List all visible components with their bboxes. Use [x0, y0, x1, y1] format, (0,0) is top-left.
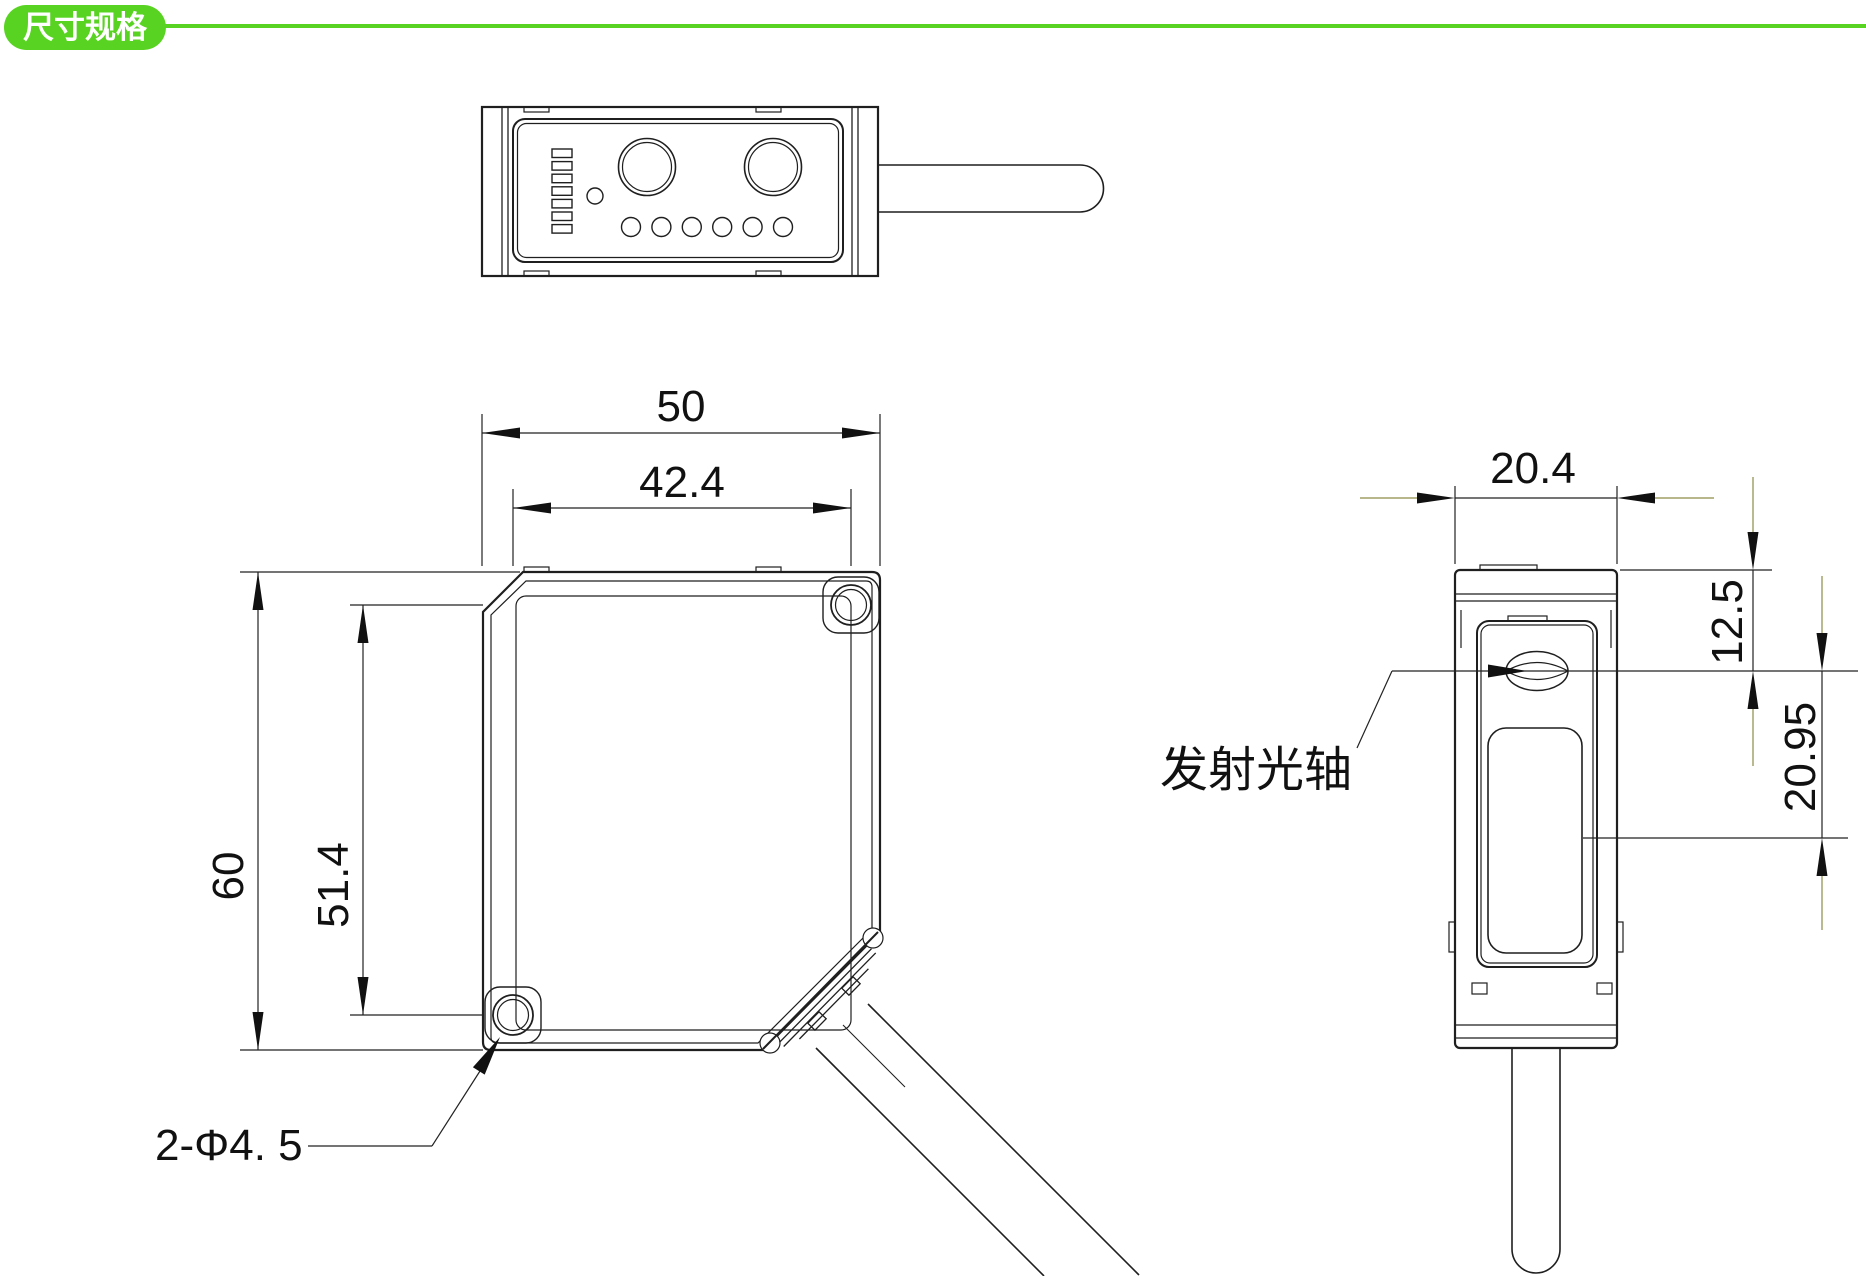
cable-edge	[868, 1004, 1139, 1275]
arrowhead	[1748, 671, 1759, 709]
led-bar	[552, 174, 572, 183]
button-dot	[682, 218, 701, 237]
dim-51-4: 51.4	[309, 605, 483, 1015]
arrowhead	[1617, 493, 1655, 504]
dim-20-4: 20.4	[1360, 444, 1714, 564]
button-dot	[743, 218, 762, 237]
gland-strip	[784, 953, 876, 1047]
leader-arrowhead	[473, 1037, 500, 1075]
dim-20-4-label: 20.4	[1490, 444, 1576, 493]
button-dot	[652, 218, 671, 237]
arrowhead	[1817, 633, 1828, 671]
hole-callout-label: 2-Φ4. 5	[155, 1121, 303, 1170]
header-badge-label: 尺寸规格	[23, 10, 148, 45]
mounting-hole-bottom-left	[493, 995, 533, 1035]
arrowhead	[253, 572, 264, 610]
arrowhead	[1417, 493, 1455, 504]
label-2-phi4-5: 2-Φ4. 5	[155, 1037, 500, 1170]
cable-front-view	[816, 1004, 1139, 1276]
leader-line	[1357, 671, 1392, 748]
button-row	[622, 218, 793, 237]
leader-line	[432, 1071, 480, 1146]
cable-top-view	[878, 165, 1104, 212]
front-body-outline	[483, 572, 880, 1050]
cable-side-view	[1512, 1048, 1560, 1273]
front-view-drawing	[483, 567, 1139, 1276]
arrowhead	[842, 428, 880, 439]
dim-60-label: 60	[204, 852, 253, 901]
top-view-body	[482, 107, 878, 276]
lens-emitter-inner	[623, 143, 672, 192]
dim-42-4: 42.4	[513, 458, 851, 566]
cable-mid-line	[843, 1025, 905, 1087]
lens-emitter	[619, 139, 676, 196]
led-bar	[552, 187, 572, 196]
lower-tab	[1472, 983, 1487, 994]
face-panel	[513, 119, 843, 262]
drawing-canvas: 尺寸规格	[0, 0, 1866, 1276]
emission-axis-label: 发射光轴	[1160, 744, 1352, 797]
led-bar-column	[552, 149, 572, 233]
arrowhead	[1748, 532, 1759, 570]
button-dot	[713, 218, 732, 237]
top-view-drawing	[482, 107, 1104, 276]
dim-51-4-label: 51.4	[309, 842, 358, 928]
led-bar	[552, 149, 572, 158]
dim-50-label: 50	[657, 382, 706, 431]
indicator-led	[587, 188, 603, 204]
arrowhead	[813, 503, 851, 514]
dim-12-5-label: 12.5	[1703, 579, 1752, 665]
cable-gland	[780, 949, 876, 1047]
dim-12-5: 12.5	[1620, 477, 1772, 766]
button-dot	[774, 218, 793, 237]
led-bar	[552, 212, 572, 221]
section-header: 尺寸规格	[4, 5, 1866, 50]
side-view-dimensions: 20.4 12.5 20.95 发射光轴	[1160, 444, 1858, 930]
lens-receiver	[745, 139, 802, 196]
lens-receiver-inner	[749, 143, 798, 192]
led-bar	[552, 199, 572, 208]
chamfer-edge	[763, 932, 878, 1049]
arrowhead	[1817, 838, 1828, 876]
button-dot	[622, 218, 641, 237]
front-face-plate	[516, 596, 851, 1030]
gland-strip	[780, 949, 872, 1043]
arrowhead	[253, 1012, 264, 1050]
led-bar	[552, 225, 572, 234]
arrowhead	[482, 428, 520, 439]
dimension-drawing-page: 尺寸规格	[0, 0, 1866, 1276]
arrowhead	[513, 503, 551, 514]
arrowhead	[358, 977, 369, 1015]
lower-tab	[1597, 983, 1612, 994]
cable-edge	[816, 1048, 1044, 1276]
dim-42-4-label: 42.4	[639, 458, 725, 507]
arrowhead	[358, 605, 369, 643]
display-window	[1488, 728, 1582, 953]
mounting-hole-bottom-left-inner	[498, 1000, 529, 1031]
led-bar	[552, 162, 572, 171]
front-body-inner-line	[491, 581, 872, 1043]
dim-20-95-label: 20.95	[1776, 702, 1825, 812]
